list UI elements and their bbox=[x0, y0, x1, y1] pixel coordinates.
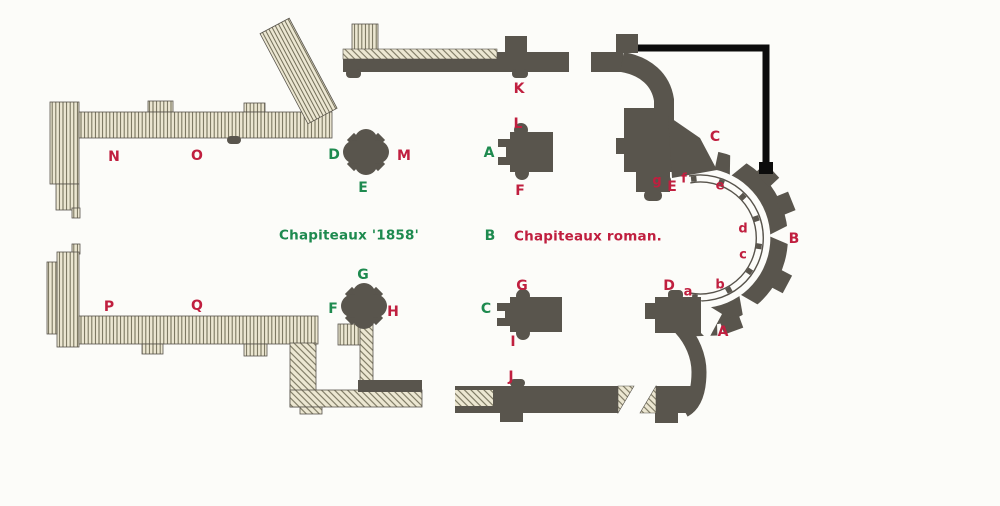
apse-ambulatory bbox=[688, 150, 796, 340]
capital-label-f-lower: f bbox=[681, 173, 687, 186]
capital-label-D-red: D bbox=[663, 279, 675, 293]
capital-label-d-lower: d bbox=[738, 223, 747, 236]
capital-label-J: J bbox=[508, 370, 513, 384]
choir-pier-south bbox=[497, 289, 562, 340]
capital-label-L: L bbox=[514, 117, 523, 131]
capital-label-H: H bbox=[387, 305, 399, 319]
legend-chapiteaux-roman: Chapiteaux roman. bbox=[514, 230, 662, 244]
capital-label-K: K bbox=[514, 82, 525, 96]
capital-label-I: I bbox=[510, 335, 515, 349]
capital-label-F-red-choir: F bbox=[515, 184, 525, 198]
west-facade-walls bbox=[47, 102, 80, 347]
capital-label-B-red: B bbox=[789, 232, 800, 246]
capital-label-A-green: A bbox=[484, 146, 495, 160]
capital-label-a-lower: a bbox=[684, 286, 693, 299]
capital-label-C-red-apse: C bbox=[710, 130, 720, 144]
capital-label-A-red: A bbox=[718, 325, 729, 339]
capital-label-M: M bbox=[397, 149, 411, 163]
nave-pier-southwest bbox=[341, 283, 387, 329]
nave-pier-northwest bbox=[343, 129, 389, 175]
capital-label-O: O bbox=[191, 149, 203, 163]
floor-plan-drawing bbox=[0, 0, 1000, 506]
north-choir-wall bbox=[343, 34, 664, 126]
south-choir-wall bbox=[455, 379, 693, 423]
capital-label-b-lower: b bbox=[715, 279, 724, 292]
capital-label-g-lower: g bbox=[652, 175, 661, 188]
south-nave-wall bbox=[79, 316, 318, 356]
church-floor-plan: N O D M E K L A F Chapiteaux '1858' B Ch… bbox=[0, 0, 1000, 506]
choir-pier-north bbox=[498, 123, 553, 180]
capital-label-P: P bbox=[104, 300, 114, 314]
apse-colonnade-columns bbox=[691, 176, 762, 300]
capital-label-Q: Q bbox=[191, 299, 203, 313]
capital-label-C-green: C bbox=[481, 302, 491, 316]
capital-label-E-red: E bbox=[667, 180, 677, 194]
capital-label-G-red: G bbox=[516, 279, 528, 293]
capital-label-c-lower: c bbox=[739, 249, 747, 262]
capital-label-E-green: E bbox=[358, 181, 368, 195]
legend-chapiteaux-1858: Chapiteaux '1858' bbox=[279, 229, 419, 243]
capital-label-N: N bbox=[108, 150, 120, 164]
capital-label-B-green: B bbox=[485, 229, 496, 243]
capital-label-e-lower: e bbox=[716, 180, 725, 193]
capital-label-F-green: F bbox=[328, 302, 338, 316]
north-nave-wall bbox=[79, 101, 332, 144]
capital-label-D-green: D bbox=[328, 148, 340, 162]
capital-label-G-green: G bbox=[357, 268, 369, 282]
